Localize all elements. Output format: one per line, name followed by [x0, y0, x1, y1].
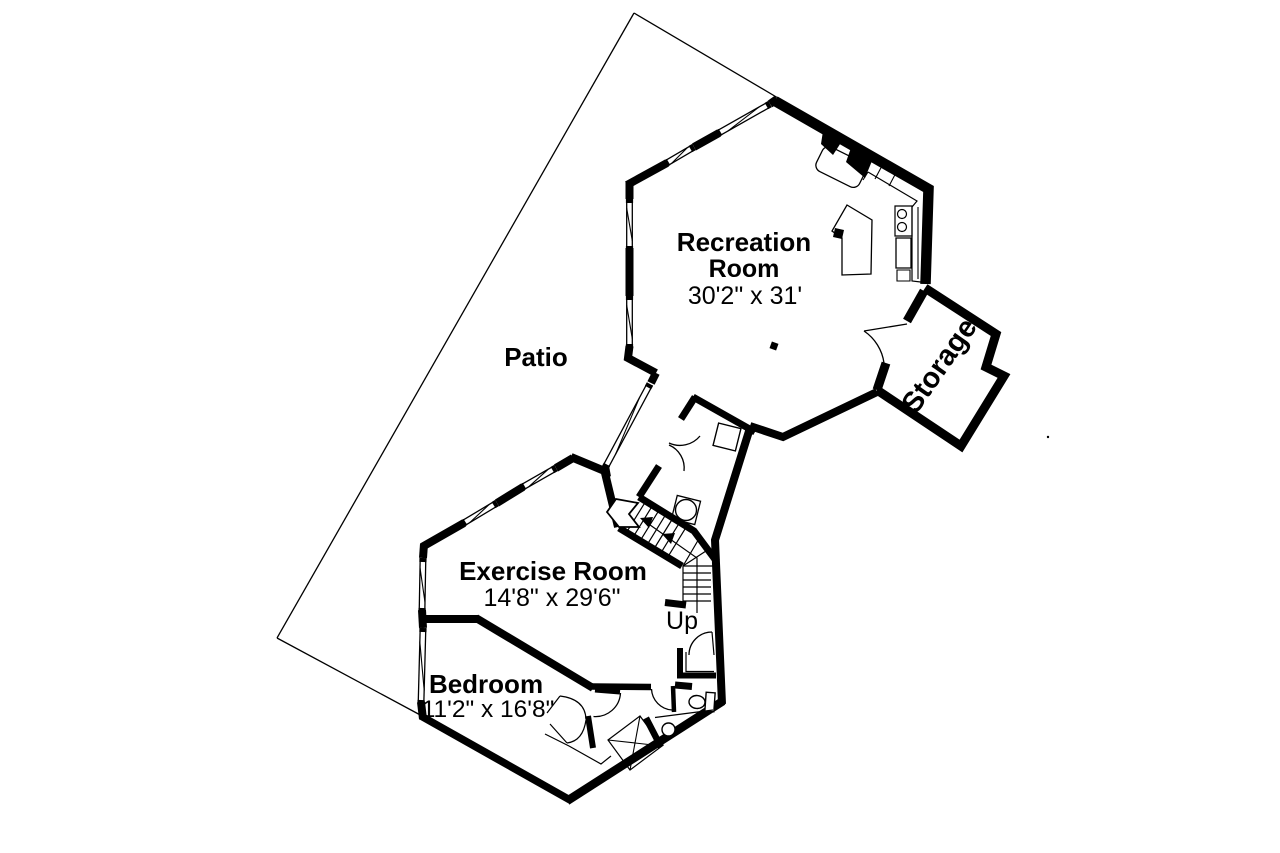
svg-text:11'2" x 16'8": 11'2" x 16'8": [422, 696, 555, 723]
svg-text:14'8" x 29'6": 14'8" x 29'6": [483, 584, 620, 612]
svg-text:Bedroom: Bedroom: [429, 669, 543, 699]
svg-text:Exercise Room: Exercise Room: [459, 556, 647, 586]
svg-text:Patio: Patio: [504, 342, 568, 372]
svg-text:Room: Room: [709, 255, 780, 283]
svg-text:30'2" x 31': 30'2" x 31': [688, 282, 802, 310]
svg-text:Recreation: Recreation: [677, 227, 811, 257]
svg-text:Up: Up: [666, 607, 698, 635]
